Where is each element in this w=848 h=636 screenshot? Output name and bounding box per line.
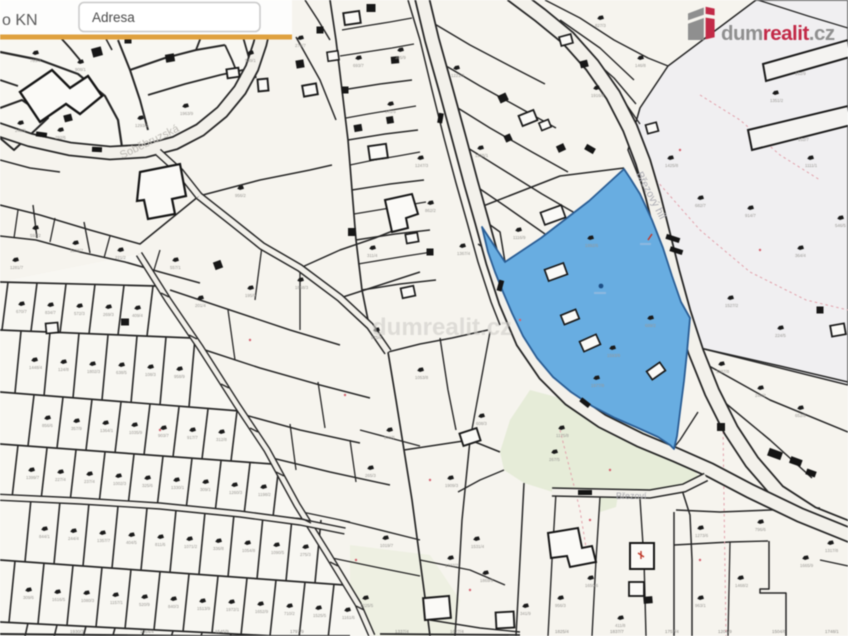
svg-text:1287/8: 1287/8	[716, 369, 730, 374]
svg-text:1504/6: 1504/6	[772, 629, 786, 634]
svg-text:1351/2: 1351/2	[770, 98, 784, 103]
svg-text:224/5: 224/5	[775, 333, 786, 338]
svg-text:1963/9: 1963/9	[180, 111, 194, 116]
svg-text:1357/7: 1357/7	[97, 538, 111, 543]
svg-text:312/8: 312/8	[216, 437, 227, 442]
svg-text:341/5: 341/5	[385, 109, 396, 114]
svg-text:608/3: 608/3	[476, 421, 487, 426]
svg-text:411/8: 411/8	[615, 623, 626, 628]
svg-text:1650/6: 1650/6	[585, 583, 599, 588]
svg-text:1652/9: 1652/9	[255, 609, 269, 614]
svg-text:336/8: 336/8	[213, 546, 224, 551]
svg-text:1977/8: 1977/8	[591, 383, 605, 388]
svg-text:1399/7: 1399/7	[26, 475, 40, 480]
svg-text:292/6: 292/6	[55, 135, 66, 140]
svg-text:557/1: 557/1	[170, 265, 181, 270]
svg-text:311/4: 311/4	[367, 253, 378, 258]
svg-text:269/3: 269/3	[103, 312, 114, 317]
svg-text:592/2: 592/2	[30, 233, 41, 238]
svg-text:409/4: 409/4	[132, 313, 143, 318]
svg-text:1616/5: 1616/5	[52, 597, 66, 602]
svg-text:834/7: 834/7	[45, 310, 56, 315]
svg-text:1161/6: 1161/6	[342, 615, 355, 620]
svg-text:1777/7: 1777/7	[445, 563, 459, 568]
svg-text:1054/8: 1054/8	[242, 548, 256, 553]
svg-text:1204/9: 1204/9	[718, 629, 732, 634]
svg-text:1337/4: 1337/4	[395, 629, 409, 634]
svg-text:265/3: 265/3	[365, 473, 376, 478]
svg-text:275/3: 275/3	[300, 552, 311, 557]
svg-text:903/7: 903/7	[158, 433, 169, 438]
svg-text:195/9: 195/9	[245, 293, 256, 298]
svg-text:1837/7: 1837/7	[610, 629, 624, 634]
svg-text:244/4: 244/4	[68, 536, 79, 541]
svg-text:325/6: 325/6	[142, 483, 153, 488]
svg-text:856/6: 856/6	[42, 423, 53, 428]
svg-text:811/6: 811/6	[155, 542, 166, 547]
svg-text:1260/3: 1260/3	[229, 490, 243, 495]
svg-text:1228/7: 1228/7	[70, 248, 84, 253]
svg-text:1273/6: 1273/6	[695, 533, 709, 538]
svg-text:1797/9: 1797/9	[290, 629, 304, 634]
svg-text:1364/4: 1364/4	[140, 629, 154, 634]
svg-text:309/1: 309/1	[200, 487, 211, 492]
svg-text:1916/6: 1916/6	[591, 93, 605, 98]
svg-text:1281/7: 1281/7	[10, 265, 24, 270]
svg-text:1593/8: 1593/8	[607, 353, 621, 358]
svg-text:1627/4: 1627/4	[450, 629, 464, 634]
svg-text:958/9: 958/9	[174, 374, 185, 379]
svg-text:710/2: 710/2	[284, 611, 295, 616]
svg-text:1909/3: 1909/3	[445, 483, 459, 488]
svg-text:152/7: 152/7	[798, 137, 809, 142]
svg-text:341/9: 341/9	[520, 611, 531, 616]
svg-text:267/5: 267/5	[549, 457, 560, 462]
svg-text:1293/1: 1293/1	[135, 123, 149, 128]
svg-text:dumrealit.cz: dumrealit.cz	[372, 314, 512, 341]
svg-text:357/9: 357/9	[71, 426, 82, 431]
svg-text:1317/8: 1317/8	[825, 548, 839, 553]
svg-text:956/2: 956/2	[235, 193, 246, 198]
svg-text:827/3: 827/3	[595, 23, 606, 28]
svg-text:1802/3: 1802/3	[87, 369, 101, 374]
svg-text:404/5: 404/5	[126, 540, 137, 545]
svg-text:o KN: o KN	[2, 12, 38, 29]
svg-text:1175/8: 1175/8	[556, 433, 569, 438]
svg-text:146/8: 146/8	[635, 63, 646, 68]
svg-text:963/1: 963/1	[695, 603, 706, 608]
svg-text:1972/1: 1972/1	[226, 607, 240, 612]
svg-text:1525/5: 1525/5	[313, 613, 327, 618]
svg-text:956/3: 956/3	[555, 603, 566, 608]
svg-text:1198/2: 1198/2	[258, 492, 271, 497]
svg-text:1665/9: 1665/9	[800, 563, 814, 568]
svg-text:1247/3: 1247/3	[415, 163, 429, 168]
svg-text:689/2: 689/2	[645, 323, 656, 328]
svg-text:201/4: 201/4	[195, 303, 206, 308]
svg-text:572/3: 572/3	[74, 311, 85, 316]
svg-text:1825/4: 1825/4	[555, 629, 569, 634]
svg-text:862/2: 862/2	[425, 208, 436, 213]
svg-text:520/9: 520/9	[139, 602, 150, 607]
svg-text:309/6: 309/6	[23, 595, 34, 600]
svg-text:1111/1: 1111/1	[805, 163, 818, 168]
svg-text:1221/2: 1221/2	[451, 73, 465, 78]
svg-text:1019/7: 1019/7	[380, 543, 394, 548]
svg-text:1448/4: 1448/4	[29, 365, 43, 370]
svg-text:693/7: 693/7	[353, 63, 364, 68]
svg-text:917/7: 917/7	[187, 435, 198, 440]
svg-text:1757/4: 1757/4	[665, 629, 679, 634]
svg-text:908/1: 908/1	[75, 67, 86, 72]
svg-text:1748/1: 1748/1	[825, 629, 839, 634]
svg-text:276/7: 276/7	[295, 43, 306, 48]
svg-text:539/1: 539/1	[245, 58, 256, 63]
svg-text:914/7: 914/7	[745, 213, 756, 218]
svg-text:124/8: 124/8	[58, 367, 69, 372]
svg-text:1080/3: 1080/3	[81, 598, 95, 603]
svg-text:546/5: 546/5	[835, 223, 846, 228]
svg-text:240/2: 240/2	[755, 393, 766, 398]
svg-text:1425/8: 1425/8	[665, 163, 679, 168]
svg-text:1869/9: 1869/9	[480, 578, 494, 583]
svg-text:1116/9: 1116/9	[513, 235, 526, 240]
svg-text:682/7: 682/7	[695, 203, 706, 208]
svg-text:108/3: 108/3	[145, 372, 156, 377]
svg-text:1892/6: 1892/6	[585, 243, 599, 248]
svg-text:1531/4: 1531/4	[471, 544, 485, 549]
svg-text:1545/9: 1545/9	[215, 629, 229, 634]
svg-text:1513/9: 1513/9	[197, 606, 211, 611]
svg-text:152/9: 152/9	[795, 71, 806, 76]
svg-text:1255/1: 1255/1	[475, 153, 489, 158]
svg-text:248/9: 248/9	[15, 128, 26, 133]
svg-text:395/9: 395/9	[395, 55, 406, 60]
svg-text:1090/5: 1090/5	[271, 550, 285, 555]
svg-text:840/3: 840/3	[168, 604, 179, 609]
svg-text:237/4: 237/4	[84, 479, 95, 484]
svg-text:1468/2: 1468/2	[735, 583, 749, 588]
svg-text:840/5: 840/5	[384, 435, 395, 440]
svg-text:1157/1: 1157/1	[110, 600, 123, 605]
svg-text:1364/1: 1364/1	[100, 428, 114, 433]
svg-text:1330/1: 1330/1	[171, 485, 185, 490]
svg-text:Březoví: Březoví	[616, 491, 647, 501]
svg-text:364/4: 364/4	[795, 253, 806, 258]
svg-text:1071/2: 1071/2	[184, 544, 198, 549]
svg-text:1527/2: 1527/2	[725, 303, 739, 308]
svg-text:1858/3: 1858/3	[295, 285, 309, 290]
svg-text:844/1: 844/1	[39, 534, 50, 539]
svg-text:796/6: 796/6	[755, 527, 766, 532]
svg-text:dumrealit.cz: dumrealit.cz	[721, 22, 835, 45]
svg-text:670/7: 670/7	[16, 309, 27, 314]
svg-text:638/5: 638/5	[116, 370, 127, 375]
svg-text:1053/8: 1053/8	[415, 375, 429, 380]
svg-text:652/8: 652/8	[795, 413, 806, 418]
svg-text:1035/9: 1035/9	[129, 430, 143, 435]
svg-text:221/2: 221/2	[115, 255, 126, 260]
svg-text:Adresa: Adresa	[92, 10, 135, 25]
svg-text:1225/5: 1225/5	[360, 603, 374, 608]
svg-text:1930/3: 1930/3	[70, 629, 84, 634]
svg-text:763/3: 763/3	[30, 58, 41, 63]
svg-text:1002/3: 1002/3	[113, 481, 127, 486]
svg-text:1367/4: 1367/4	[457, 251, 471, 256]
svg-text:227/4: 227/4	[55, 477, 66, 482]
